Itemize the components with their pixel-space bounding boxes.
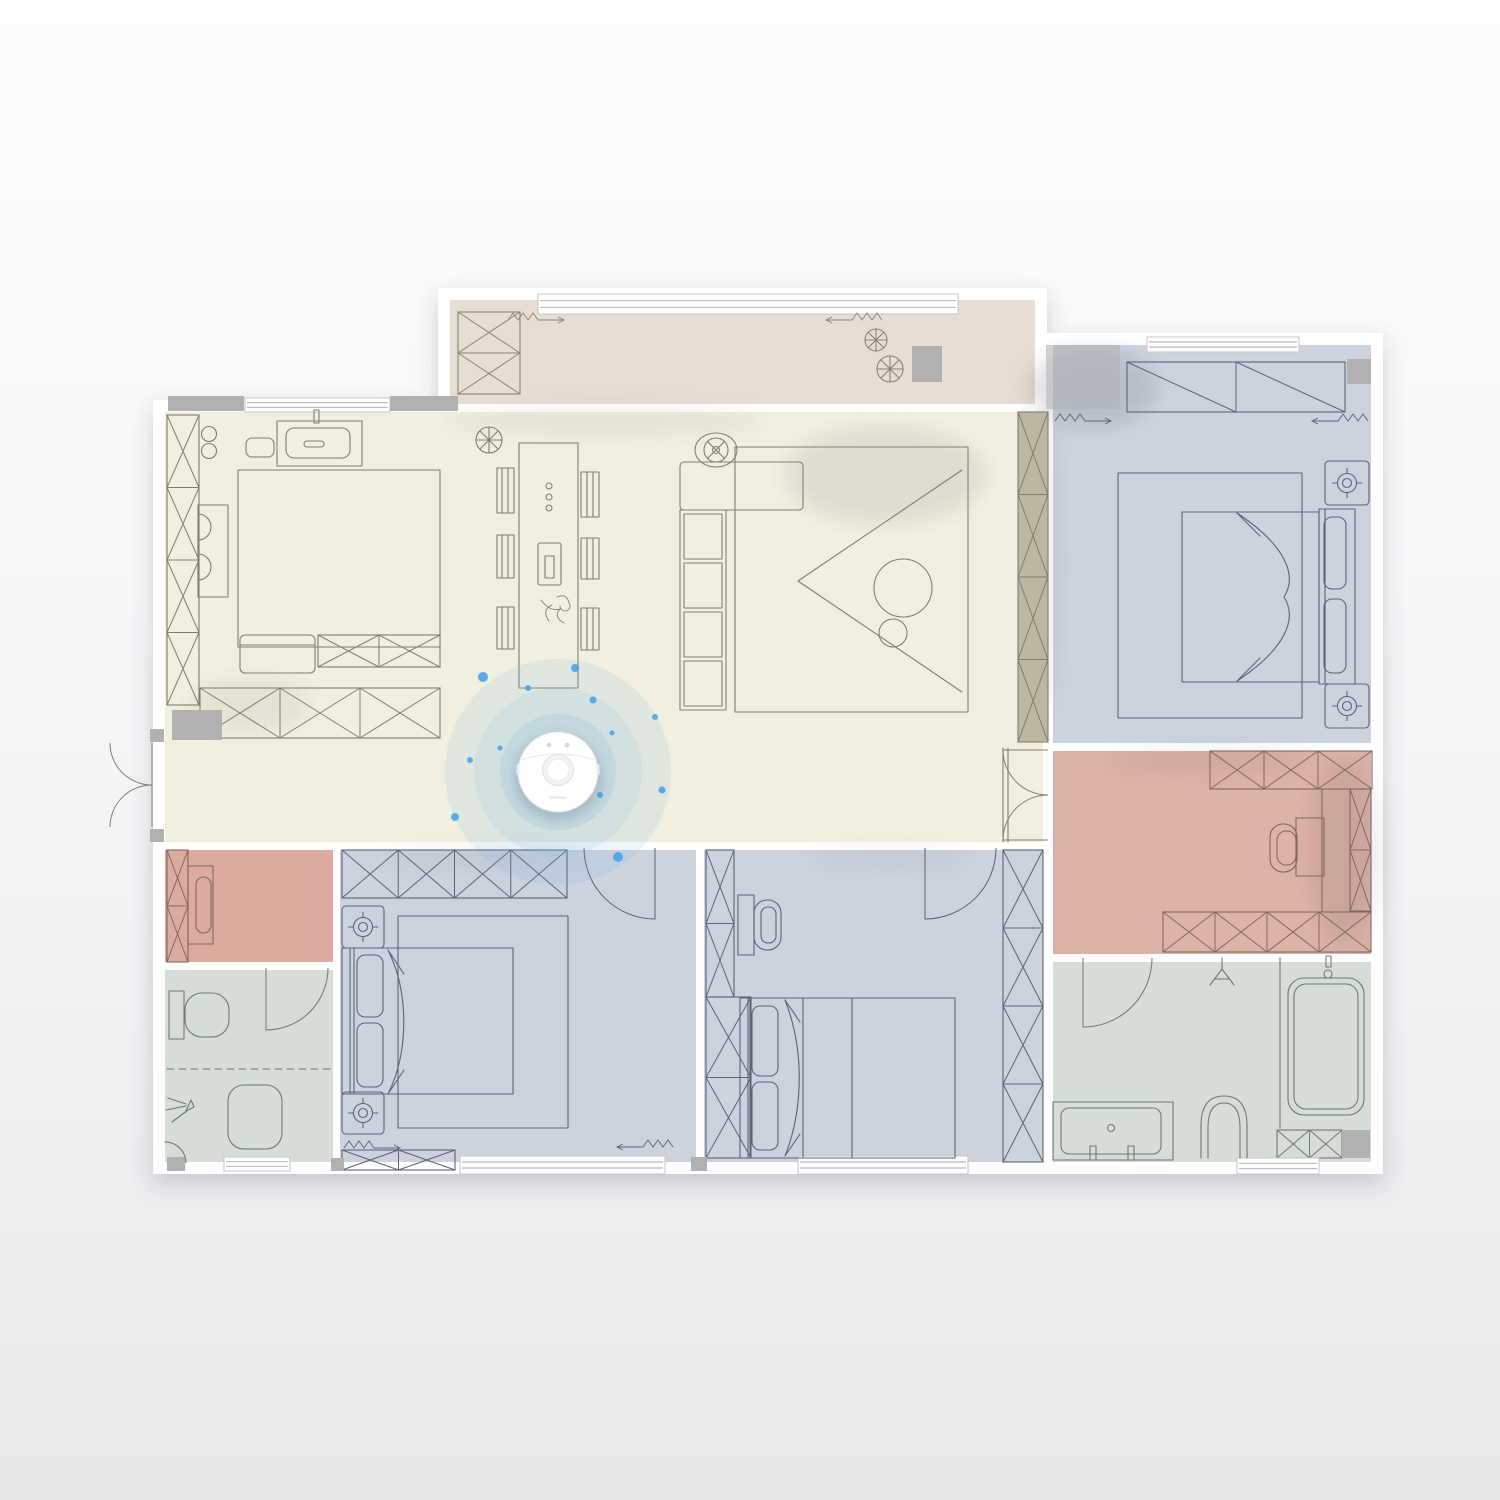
robot-side-notch <box>597 764 600 775</box>
door-swing <box>110 743 152 785</box>
structural-column <box>172 710 222 740</box>
robot-button <box>565 743 570 748</box>
map-dot <box>610 731 615 736</box>
robot-label <box>549 796 567 799</box>
window <box>1237 1158 1319 1174</box>
room-study[interactable] <box>165 850 333 962</box>
room-bedroom-middle[interactable] <box>704 850 1043 1162</box>
structural-column <box>150 829 164 842</box>
room-bedroom-left[interactable] <box>340 850 696 1162</box>
map-dot <box>525 685 531 691</box>
window <box>1147 337 1299 352</box>
map-dot <box>571 664 579 672</box>
robot-button <box>547 743 552 748</box>
structural-column <box>390 396 458 411</box>
structural-column <box>691 1157 707 1171</box>
map-dot <box>659 787 666 794</box>
structural-column <box>167 1157 185 1171</box>
structural-column <box>1342 1130 1370 1158</box>
map-dot <box>590 697 597 704</box>
map-dot <box>498 746 503 751</box>
door-swing <box>110 785 152 827</box>
potted-plant-icon <box>865 329 887 351</box>
room-balcony[interactable] <box>450 300 1035 404</box>
map-dot <box>478 672 488 682</box>
floor-plan-canvas <box>0 0 1500 1500</box>
potted-plant-icon <box>476 427 502 453</box>
ambient-shadow <box>810 846 970 870</box>
structural-column <box>168 396 244 411</box>
structural-column <box>1046 345 1120 409</box>
map-dot <box>467 757 473 763</box>
window <box>460 1156 665 1174</box>
room-bathroom-right[interactable] <box>1053 962 1371 1162</box>
ambient-shadow <box>445 404 765 436</box>
window <box>798 1156 968 1174</box>
floor-plan-svg <box>0 0 1500 1500</box>
structural-column <box>150 729 164 742</box>
map-dot <box>613 852 623 862</box>
map-dot <box>451 813 459 821</box>
window <box>538 294 958 314</box>
robot-lidar-top <box>547 759 569 781</box>
structural-column <box>1347 359 1371 384</box>
potted-plant-icon <box>877 356 903 382</box>
structural-column <box>331 1158 344 1171</box>
robot-side-notch <box>517 764 520 775</box>
room-bathroom-left[interactable] <box>165 970 333 1162</box>
map-dot <box>652 714 658 720</box>
structural-column <box>912 346 942 382</box>
window <box>224 1157 290 1171</box>
